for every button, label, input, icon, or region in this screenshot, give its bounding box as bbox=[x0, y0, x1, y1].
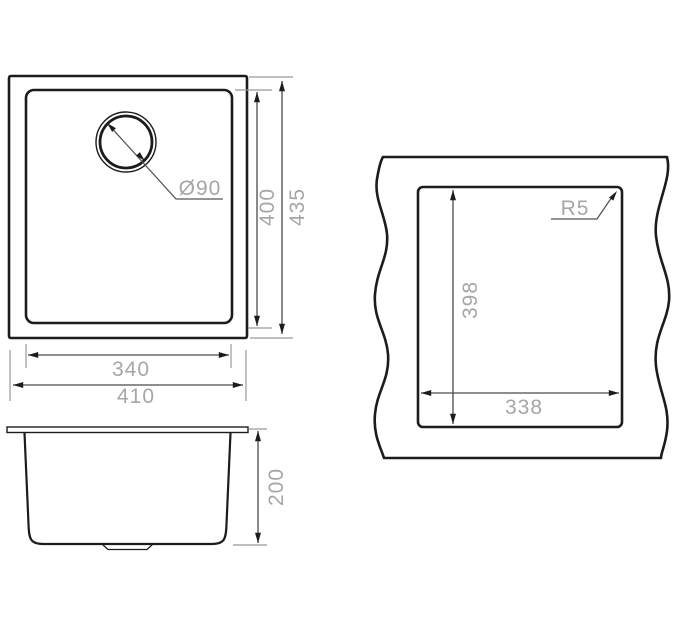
sink-rim bbox=[7, 427, 248, 433]
cutout-height-label: 398 bbox=[459, 281, 482, 319]
drawing-svg: Ø90 400 435 340 bbox=[0, 0, 680, 630]
side-object-lines bbox=[7, 427, 248, 550]
overall-width-label: 410 bbox=[117, 385, 155, 408]
cutout-opening bbox=[418, 187, 622, 427]
sink-technical-drawing: Ø90 400 435 340 bbox=[0, 0, 680, 630]
side-extension-lines bbox=[233, 429, 267, 545]
sink-side-view: 200 bbox=[7, 427, 288, 550]
overall-depth-label: 435 bbox=[286, 188, 309, 226]
dim-overall-width: 410 bbox=[13, 385, 243, 408]
dim-bowl-width: 340 bbox=[28, 355, 229, 381]
dim-sink-height: 200 bbox=[258, 431, 288, 543]
bowl-depth-label: 400 bbox=[256, 188, 279, 226]
plan-object-lines bbox=[9, 76, 247, 338]
countertop-cutout-view: 398 338 R5 bbox=[375, 157, 670, 458]
dim-bowl-depth: 400 bbox=[256, 92, 279, 326]
sink-height-label: 200 bbox=[265, 468, 288, 506]
drain-diameter-label: Ø90 bbox=[179, 177, 222, 200]
dim-overall-depth: 435 bbox=[282, 81, 309, 334]
corner-radius-label: R5 bbox=[561, 197, 590, 220]
sink-body-outline bbox=[25, 433, 231, 544]
sink-plan-view: Ø90 400 435 340 bbox=[9, 76, 309, 408]
sink-bowl-edge bbox=[26, 90, 232, 323]
cutout-width-label: 338 bbox=[505, 396, 543, 419]
bowl-width-label: 340 bbox=[112, 358, 150, 381]
